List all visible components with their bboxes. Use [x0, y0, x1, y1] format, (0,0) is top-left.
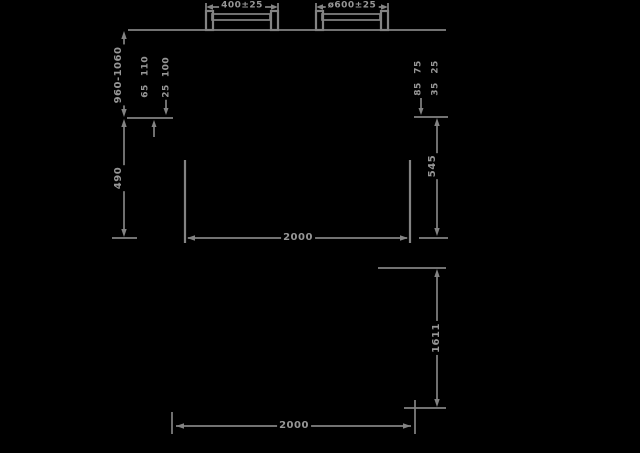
- bracket-right-dim-label: ø600±25: [326, 1, 379, 12]
- dimension-drawing: 400±25 ø600±25 960-1060 110 65 100 25 49…: [0, 0, 640, 453]
- lower-height-left-label: 490: [113, 165, 125, 191]
- plan-view-lines: [172, 268, 446, 434]
- drawing-linework: [0, 0, 640, 453]
- small-dim-25-left-label: 25: [162, 82, 173, 100]
- small-dim-65-label: 65: [141, 82, 152, 100]
- height-range-label: 960-1060: [113, 45, 125, 106]
- small-dim-25-right-label: 25: [431, 58, 442, 76]
- small-dim-75-label: 75: [414, 58, 425, 76]
- bracket-left-dim-label: 400±25: [219, 1, 265, 12]
- plan-width-label: 2000: [277, 420, 311, 432]
- front-overall-width-label: 2000: [281, 232, 315, 244]
- front-view-lines: [112, 3, 448, 243]
- small-dim-100-label: 100: [162, 55, 173, 79]
- front-width-dimension: [112, 235, 448, 240]
- small-dim-35-label: 35: [431, 80, 442, 98]
- lower-height-right-label: 545: [427, 153, 439, 179]
- plan-depth-label: 1611: [431, 321, 443, 355]
- small-dim-85-label: 85: [414, 80, 425, 98]
- small-dim-110-label: 110: [141, 54, 152, 78]
